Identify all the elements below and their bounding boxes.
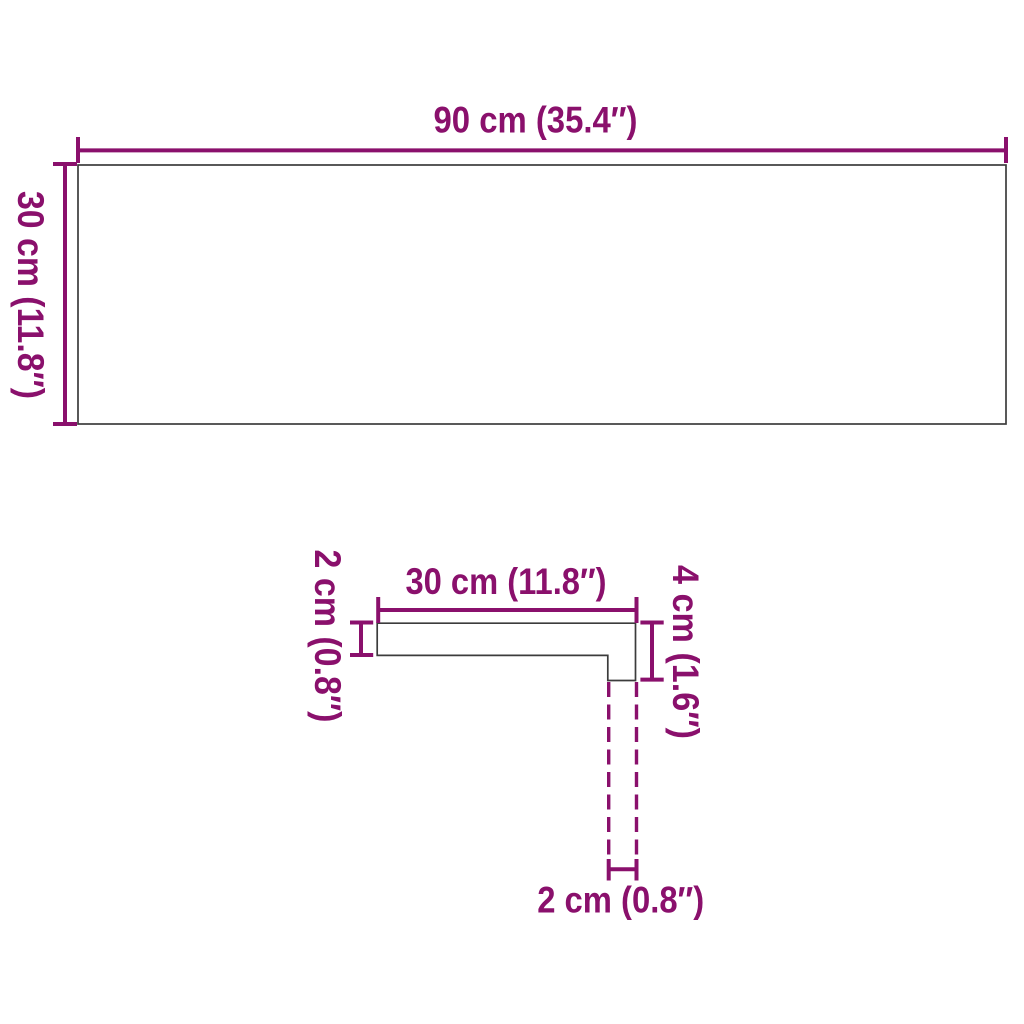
svg-text:4 cm (1.6″): 4 cm (1.6″) [665, 565, 707, 739]
svg-text:90 cm (35.4″): 90 cm (35.4″) [434, 99, 638, 141]
svg-text:30 cm (11.8″): 30 cm (11.8″) [10, 191, 52, 399]
svg-text:2 cm (0.8″): 2 cm (0.8″) [537, 879, 704, 921]
svg-text:30 cm (11.8″): 30 cm (11.8″) [406, 560, 607, 602]
svg-text:2 cm (0.8″): 2 cm (0.8″) [307, 550, 349, 723]
